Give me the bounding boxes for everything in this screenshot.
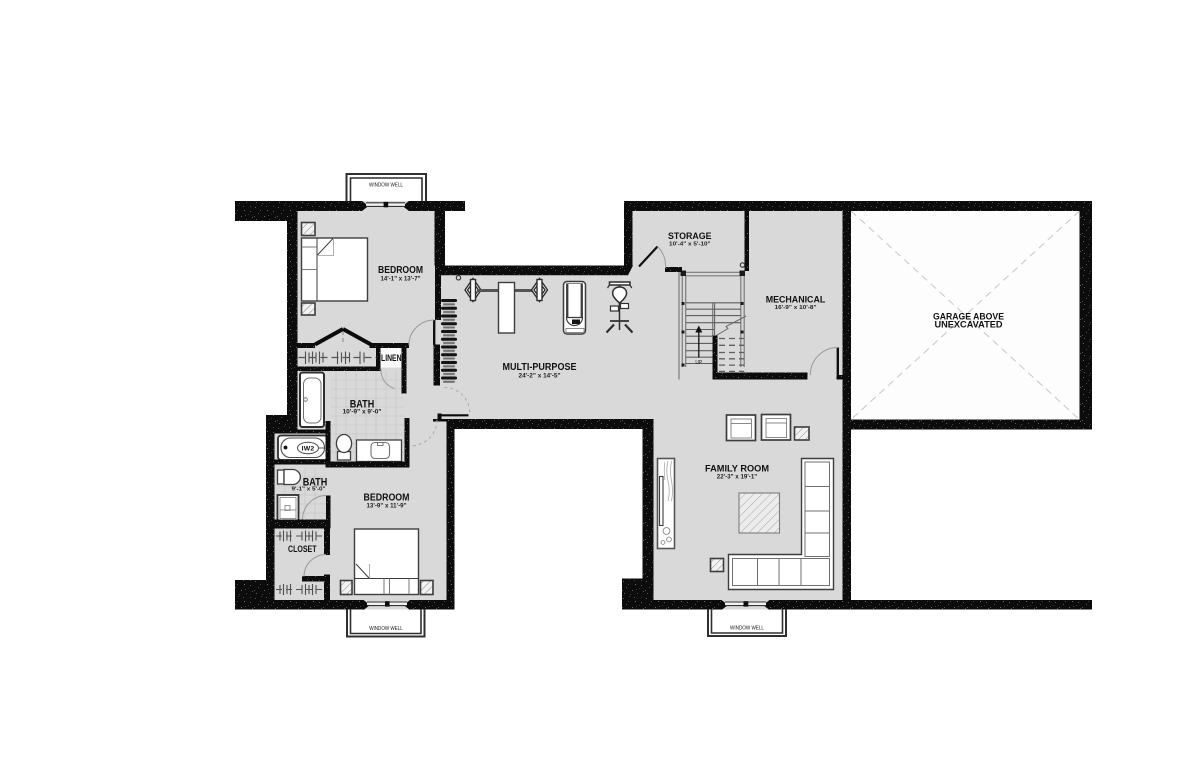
- svg-text:UP: UP: [695, 360, 703, 366]
- svg-text:WINDOW WELL: WINDOW WELL: [369, 626, 403, 632]
- svg-text:IW2: IW2: [302, 445, 315, 452]
- svg-text:14'-1" x 13'-7": 14'-1" x 13'-7": [381, 276, 421, 283]
- svg-text:22'-3" x 19'-1": 22'-3" x 19'-1": [717, 475, 758, 481]
- svg-text:10'-9" x 9'-0": 10'-9" x 9'-0": [343, 410, 382, 416]
- svg-text:16'-9" x 10'-8": 16'-9" x 10'-8": [775, 305, 817, 311]
- svg-text:UNEXCAVATED: UNEXCAVATED: [935, 319, 1003, 329]
- svg-text:9'-1" x 5'-0": 9'-1" x 5'-0": [292, 487, 326, 493]
- svg-text:BEDROOM: BEDROOM: [378, 265, 423, 276]
- svg-text:BEDROOM: BEDROOM: [364, 492, 410, 503]
- svg-text:BATH: BATH: [350, 399, 375, 411]
- svg-text:LINEN: LINEN: [381, 353, 402, 363]
- svg-text:10'-4" x 5'-10": 10'-4" x 5'-10": [669, 241, 711, 247]
- svg-text:FAMILY ROOM: FAMILY ROOM: [705, 464, 769, 475]
- svg-text:WINDOW WELL: WINDOW WELL: [730, 626, 764, 632]
- svg-text:STORAGE: STORAGE: [668, 231, 712, 241]
- svg-text:CLOSET: CLOSET: [288, 544, 317, 554]
- svg-text:13'-9" x 11'-9": 13'-9" x 11'-9": [367, 503, 407, 509]
- svg-text:MULTI-PURPOSE: MULTI-PURPOSE: [503, 362, 577, 373]
- svg-text:24'-2" x 14'-5": 24'-2" x 14'-5": [519, 373, 561, 379]
- svg-text:WINDOW WELL: WINDOW WELL: [369, 183, 403, 189]
